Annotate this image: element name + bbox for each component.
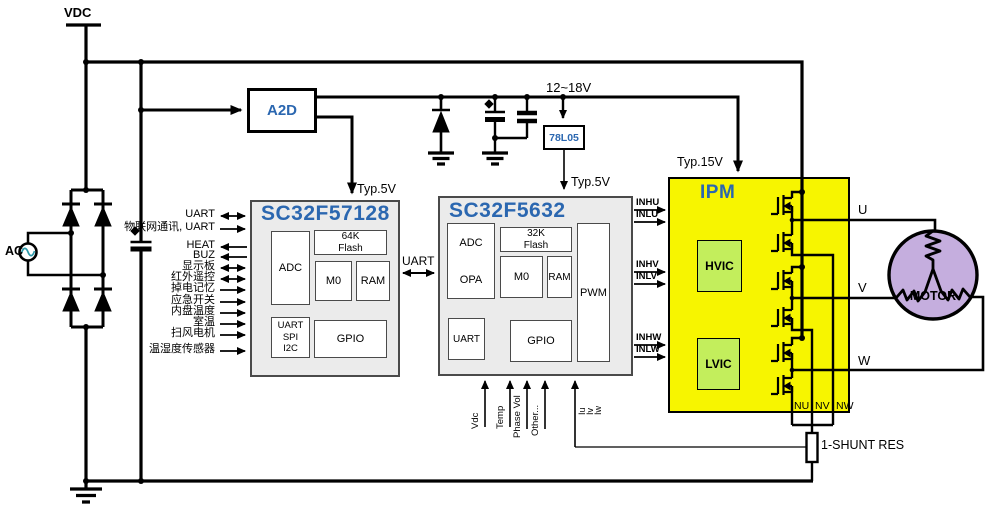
shunt-label: 1-SHUNT RES [821, 438, 897, 454]
pwm-out-inlu: INLU [636, 210, 658, 220]
signal-humidity-sensor: 温湿度传感器 [25, 344, 215, 356]
mcu2-m0-label: M0 [514, 271, 529, 283]
mcu1-comms-block: UART SPI I2C [271, 317, 310, 358]
signal-uart: UART [25, 209, 215, 221]
input-iw: Iw [593, 393, 603, 415]
mcu1-ram-block: RAM [356, 261, 390, 301]
ipm-hvic-block: HVIC [697, 240, 742, 292]
mcu2-ram-block: RAM [547, 256, 572, 298]
typ5v-mcu2-label: Typ.5V [571, 176, 610, 189]
mcu2-gpio-label: GPIO [527, 335, 555, 347]
mcu2-pwm-label: PWM [580, 287, 607, 299]
signal-coil-temp: 内盘温度 [25, 306, 215, 318]
vdc-label: VDC [64, 6, 91, 20]
mcu2-flash-block: 32K Flash [500, 227, 572, 252]
phase-w-label: W [858, 354, 870, 368]
signal-fan-motor: 扫风电机 [25, 328, 215, 340]
pin-nv-label: NV [815, 401, 830, 412]
mcu1-signal-arrows [220, 216, 247, 351]
input-vdc: Vdc [470, 387, 481, 429]
ipm-block [668, 177, 850, 413]
mcu2-uart-label: UART [453, 334, 480, 345]
typ5v-mcu1-label: Typ.5V [357, 183, 396, 196]
phase-u-label: U [858, 203, 867, 217]
a2d-label: A2D [267, 102, 297, 119]
mcu2-pwm-block: PWM [577, 223, 610, 362]
phase-v-label: V [858, 281, 867, 295]
mcu1-ram-label: RAM [361, 275, 385, 287]
signal-iot-uart: 物联网通讯, UART [25, 222, 215, 234]
pwm-out-inhu: INHU [636, 198, 659, 208]
pin-nu-label: NU [794, 401, 809, 412]
mcu2-uart-block: UART [448, 318, 485, 360]
mcu2-ram-label: RAM [548, 272, 570, 283]
mcu1-m0-block: M0 [315, 261, 352, 301]
mcu1-comms-label: UART SPI I2C [278, 320, 304, 354]
pwm-out-inhw: INHW [636, 333, 661, 343]
power-feeds [141, 97, 738, 193]
input-phase-vol: Phase Vol [512, 384, 523, 438]
shunt-resistor [807, 433, 818, 462]
mcu1-flash-label: 64K Flash [338, 231, 362, 255]
bus-voltage-label: 12~18V [546, 81, 591, 95]
input-temp: Temp [495, 387, 506, 429]
a2d-block: A2D [247, 88, 317, 133]
motor-label: MOTOR [906, 290, 960, 303]
mcu1-adc-label: ADC [279, 262, 302, 274]
mcu1-m0-label: M0 [326, 275, 341, 287]
lvic-label: LVIC [705, 357, 731, 371]
signal-power-memory: 掉电记忆 [25, 283, 215, 295]
mcu1-gpio-label: GPIO [337, 333, 365, 345]
mcu2-flash-label: 32K Flash [524, 228, 548, 252]
pin-nw-label: NW [836, 401, 854, 412]
uart-link-label: UART [402, 255, 434, 268]
hvic-label: HVIC [705, 259, 734, 273]
input-other: Other... [530, 386, 541, 436]
motor-control-block-diagram: A2D 78L05 SC32F57128 ADC 64K Flash M0 RA… [0, 0, 987, 515]
mcu2-gpio-block: GPIO [510, 320, 572, 362]
pwm-out-inlv: INLV [636, 272, 657, 282]
mcu1-adc-block: ADC [271, 231, 310, 305]
ac-label: AC [5, 245, 23, 258]
regulator-label: 78L05 [549, 132, 579, 144]
ipm-lvic-block: LVIC [697, 338, 740, 390]
mcu2-m0-block: M0 [500, 256, 543, 298]
mcu1-flash-block: 64K Flash [314, 230, 387, 255]
mcu2-adc-label: ADC [459, 237, 482, 249]
ipm-title: IPM [700, 182, 735, 204]
mcu2-opa-label: OPA [460, 274, 482, 286]
motor-symbol [889, 231, 977, 319]
mcu1-gpio-block: GPIO [314, 320, 387, 358]
mcu2-adc-opa-block: ADC OPA [447, 223, 495, 299]
mcu1-title: SC32F57128 [261, 202, 390, 226]
regulator-78l05-block: 78L05 [543, 125, 585, 150]
pwm-out-inlw: INLW [636, 345, 660, 355]
typ15v-label: Typ.15V [677, 156, 723, 169]
pwm-out-inhv: INHV [636, 260, 659, 270]
mcu2-title: SC32F5632 [449, 199, 566, 223]
